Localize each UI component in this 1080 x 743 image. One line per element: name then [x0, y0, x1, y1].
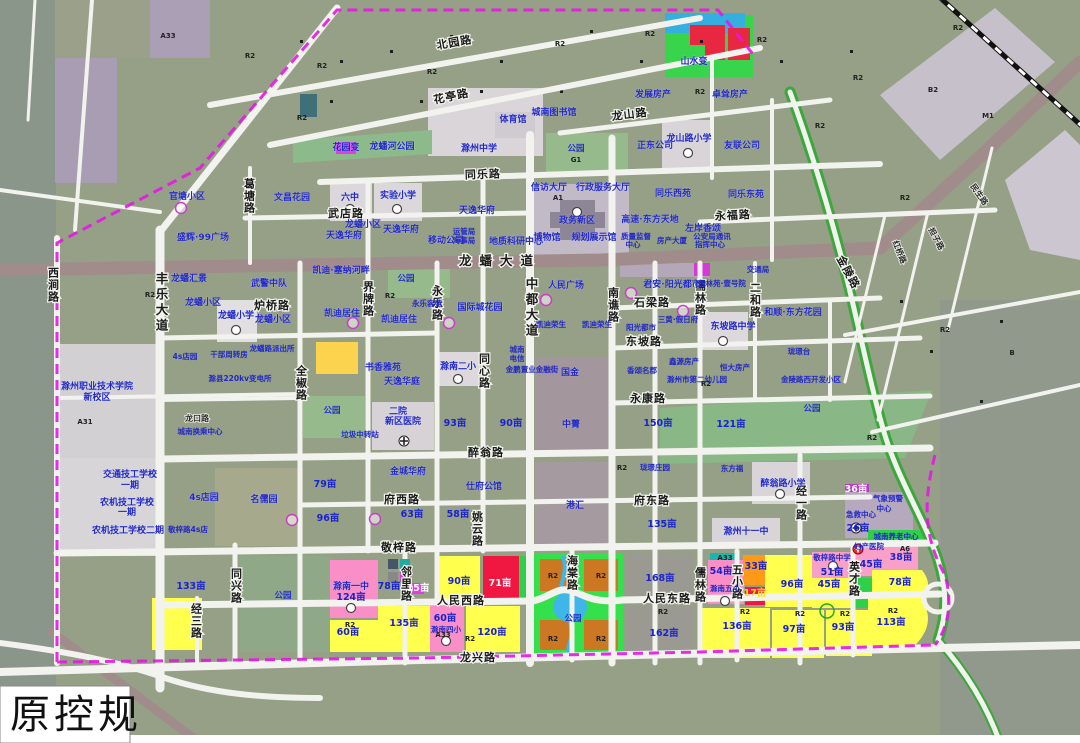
place-label: 新区医院 [385, 415, 421, 427]
place-label: 凯迪·塞纳河畔 [312, 264, 369, 276]
place-label: 龙蟠路派出所 [250, 343, 295, 353]
road-label: 姚云路 [471, 510, 485, 547]
road-label: 永康路 [629, 391, 666, 405]
zone-code: R2 [840, 610, 850, 618]
zone-code: R2 [345, 621, 355, 629]
zone-code: A1 [553, 194, 563, 202]
place-label: 东方福 [721, 463, 744, 473]
zone-code: R2 [297, 114, 307, 122]
screenshot-root: 北园路花亭路龙山路同乐路武店路永福路龙蟠大道炉桥路石梁路东坡路永康路醉翁路府西路… [0, 0, 1080, 743]
zone-code: R2 [853, 74, 863, 82]
road-label: 南谯路 [607, 286, 620, 323]
area-label: 150亩 [643, 417, 673, 429]
place-label: 龙蟠小区 [184, 296, 221, 308]
area-label: 60亩 [434, 612, 457, 624]
place-label: 滁州职业技术学院 [61, 380, 133, 392]
place-label: 儒林苑·壹号院 [697, 278, 746, 288]
place-label: 实验小学 [380, 189, 416, 201]
place-label: 敬梓路中学 [812, 552, 851, 562]
zone-code: R2 [695, 88, 705, 96]
area-label: 33亩 [745, 560, 768, 572]
place-label: 金鹏置业金融街 [505, 364, 559, 374]
place-label: 急救中心 [846, 509, 876, 519]
place-label: 同乐西苑 [655, 187, 691, 199]
zone-code: R2 [145, 291, 155, 299]
place-label: 醉翁路小学 [760, 477, 805, 489]
zone-code: B [1009, 349, 1014, 357]
place-label: 天逸华府 [459, 204, 495, 216]
place-label: 滁南二小 [440, 360, 476, 372]
place-label: 盛辉·99广场 [177, 231, 229, 243]
zone-code: R2 [658, 608, 668, 616]
road-label: 龙兴路 [459, 650, 496, 664]
zone-code: R2 [548, 635, 558, 643]
place-label: 妇产医院 [853, 541, 884, 551]
place-label: 花园变 [332, 141, 359, 153]
area-label: 97亩 [783, 623, 806, 635]
place-label: 4s店园 [173, 351, 198, 361]
zone-code: G1 [571, 156, 582, 164]
park-label: 公园 [567, 144, 584, 154]
place-label: 天逸华庭 [384, 375, 421, 387]
place-label: 城南图书馆 [531, 106, 576, 118]
place-label: 规划展示馆 [571, 231, 616, 243]
area-label: 78亩 [378, 580, 401, 592]
road-label: 五小路 [731, 564, 745, 600]
zone-code: R2 [317, 62, 327, 70]
road-label: 东坡路 [626, 334, 662, 348]
place-label: 凯迪居住 [381, 313, 417, 325]
place-label: 城南养老中心 [874, 531, 919, 541]
place-label: 4s店园 [189, 491, 219, 503]
place-label: 龙蟠小学 [217, 309, 254, 321]
road-label: 界牌路 [362, 281, 375, 317]
place-label: 信访大厅 [531, 181, 567, 193]
place-label: 运管局 [453, 226, 476, 236]
place-label: 体育馆 [499, 113, 526, 125]
area-label: 135亩 [389, 617, 419, 629]
zone-code: R2 [940, 326, 950, 334]
place-label: 龙蟠河公园 [368, 140, 414, 152]
road-label: 儒林路 [694, 566, 707, 603]
place-label: 新校区 [83, 391, 110, 403]
road-label: 中都大道 [524, 276, 539, 339]
area-label: 36亩 [845, 483, 868, 495]
zone-code: R2 [815, 122, 825, 130]
area-label: 45亩 [860, 558, 883, 570]
zone-code: R2 [596, 635, 606, 643]
place-label: 城南 [510, 344, 525, 354]
place-label: 气象预警 [872, 493, 903, 503]
place-label: 干部周转房 [210, 349, 248, 359]
park-label: 公园 [397, 274, 414, 284]
place-label: 珑璟台 [788, 346, 811, 356]
place-label: 指挥中心 [695, 239, 725, 249]
area-label: 120亩 [477, 626, 507, 638]
area-label: 54亩 [710, 565, 733, 577]
area-label: 133亩 [176, 580, 206, 592]
place-label: 凯迪荣生 [536, 319, 566, 329]
place-label: 电信 [510, 353, 525, 363]
zone-code: M1 [982, 112, 994, 120]
place-label: 龙蟠小区 [344, 218, 381, 230]
road-label: 石梁路 [633, 295, 670, 309]
place-label: 永乐容苑 [411, 298, 442, 308]
area-label: 93亩 [832, 621, 855, 633]
road-label: 府东路 [634, 493, 670, 507]
place-label: 海事局 [453, 235, 476, 245]
zone-code: R2 [427, 68, 437, 76]
place-label: 滁州中学 [461, 142, 497, 154]
area-label: 168亩 [645, 572, 675, 584]
city-plan-map: 北园路花亭路龙山路同乐路武店路永福路龙蟠大道炉桥路石梁路东坡路永康路醉翁路府西路… [0, 0, 1080, 743]
place-label: 文昌花园 [273, 191, 310, 203]
road-label: 醉翁路 [468, 445, 504, 459]
place-label: 发展房产 [634, 88, 671, 100]
zone-code: R2 [701, 380, 711, 388]
place-label: 高速·东方天地 [621, 213, 678, 225]
area-label: 162亩 [649, 627, 679, 639]
place-label: 金城华府 [389, 465, 426, 477]
zone-code: R2 [900, 194, 910, 202]
area-label: 26亩 [847, 522, 870, 534]
zone-code: R2 [867, 434, 877, 442]
place-label: 城南换乘中心 [178, 426, 223, 436]
area-label: 15亩 [407, 582, 430, 594]
road-label: 龙口路 [184, 413, 210, 423]
place-label: 仕府公馆 [465, 480, 502, 492]
zone-code: R2 [617, 464, 627, 472]
place-label: 垃圾中转站 [341, 429, 379, 439]
road-label: 丰乐大道 [154, 271, 169, 334]
road-label: 龙蟠大道 [458, 253, 541, 268]
road-label: 经一路 [795, 484, 808, 521]
road-label: 全椒路 [295, 364, 309, 401]
caption: 原控规 [10, 692, 142, 738]
road-label: 武店路 [328, 206, 364, 220]
place-label: 天逸华府 [326, 229, 362, 241]
zone-code: A33 [717, 554, 732, 562]
place-label: 中菁 [562, 418, 580, 430]
place-label: 农机技工学校二期 [91, 524, 164, 536]
road-label: 葛塘路 [243, 177, 257, 214]
area-label: 78亩 [889, 576, 912, 588]
place-label: 房产大厦 [657, 235, 687, 245]
place-label: 官塘小区 [169, 190, 205, 202]
road-label: 二和路 [749, 282, 762, 318]
place-label: 一期 [118, 506, 136, 518]
road-label: 经三路 [190, 602, 203, 639]
road-label: 海棠路 [566, 554, 580, 591]
place-label: 滁州市第二幼儿园 [667, 374, 727, 384]
area-label: 136亩 [722, 620, 752, 632]
place-label: 和顺·东方花园 [763, 306, 821, 318]
place-label: 滁南五小 [710, 583, 740, 593]
place-label: 龙蟠小区 [254, 313, 291, 325]
place-label: 龙山路小学 [665, 132, 711, 144]
area-label: 63亩 [401, 508, 424, 520]
place-label: 博物馆 [533, 231, 560, 243]
zone-code: B2 [928, 86, 938, 94]
place-label: 友联公司 [724, 139, 760, 151]
area-label: 71亩 [489, 577, 512, 589]
area-label: 90亩 [500, 417, 523, 429]
place-label: 卓耸房产 [712, 88, 748, 100]
zone-code: R2 [888, 607, 898, 615]
road-label: 同心路 [478, 353, 491, 389]
zone-code: R2 [953, 24, 963, 32]
place-label: 行政服务大厅 [575, 181, 630, 193]
place-label: 中心 [626, 239, 641, 249]
place-label: 交通技工学校 [103, 468, 158, 480]
place-label: 交通局 [747, 264, 770, 274]
place-label: 鑫源房产 [668, 356, 699, 366]
zone-code: R2 [465, 635, 475, 643]
zone-code: R2 [596, 572, 606, 580]
place-label: 敬梓路4s店 [167, 524, 208, 534]
place-label: 凯迪荣生 [582, 319, 612, 329]
area-label: 58亩 [447, 508, 470, 520]
zone-code: R2 [795, 610, 805, 618]
road-label: 府西路 [384, 492, 420, 506]
road-label: 西涧路 [47, 267, 60, 303]
road-label: 永福路 [713, 207, 751, 223]
place-label: 珑璟庄园 [640, 462, 670, 472]
area-label: 124亩 [336, 591, 366, 603]
road-label: 同乐路 [465, 166, 501, 181]
zone-code: A6 [900, 545, 910, 553]
area-label: 90亩 [448, 575, 471, 587]
area-label: 121亩 [716, 418, 746, 430]
zone-code: R2 [548, 572, 558, 580]
place-label: 君安·阳光都市 [643, 278, 700, 290]
place-label: 滁州十一中 [723, 525, 768, 537]
area-label: 93亩 [444, 417, 467, 429]
road-label: 同兴路 [230, 568, 243, 604]
area-label: 96亩 [317, 512, 340, 524]
place-label: 国金 [561, 366, 580, 378]
area-label: 79亩 [314, 478, 337, 490]
place-label: 武警中队 [251, 277, 288, 289]
place-label: 农机技工学校 [99, 496, 155, 508]
zone-code: R2 [555, 40, 565, 48]
place-label: 凯迪居住 [324, 307, 360, 319]
place-label: 人民广场 [547, 279, 584, 291]
road-label: 敬梓路 [380, 540, 417, 554]
area-label: 51亩 [821, 566, 844, 578]
place-label: 书香雅苑 [365, 361, 401, 373]
area-label: 96亩 [781, 578, 804, 590]
park-label: 公园 [274, 591, 291, 601]
place-label: 滁南一中 [333, 580, 369, 592]
zone-code: R2 [740, 608, 750, 616]
place-label: 阳光都市 [626, 322, 656, 332]
zone-code: R2 [757, 36, 767, 44]
place-label: 滁县220kv变电所 [208, 373, 272, 383]
place-label: 香颂名郡 [626, 365, 657, 375]
zone-code: A33 [160, 32, 175, 40]
place-label: 恒大房产 [720, 362, 750, 372]
place-label: 同乐东苑 [728, 188, 764, 200]
area-label: 45亩 [818, 578, 841, 590]
park-label: 公园 [323, 406, 340, 416]
place-label: 三黄·假日府 [658, 314, 699, 324]
place-label: 二院 [389, 405, 407, 417]
place-label: 左岸香颂 [684, 222, 721, 234]
place-label: 中心 [877, 503, 892, 513]
zone-code: A33 [435, 631, 450, 639]
place-label: 六中 [341, 191, 359, 203]
place-label: 一期 [121, 479, 139, 491]
place-label: 龙蟠汇景 [170, 272, 207, 284]
road-label: 人民东路 [643, 591, 691, 605]
zone-code: R2 [245, 52, 255, 60]
place-label: 国际城花园 [457, 301, 502, 313]
place-label: 东坡路中学 [710, 320, 755, 332]
road-label: 炉桥路 [254, 298, 290, 312]
area-label: 135亩 [647, 518, 677, 530]
area-label: 113亩 [876, 616, 906, 628]
road-label: 人民西路 [437, 593, 485, 607]
place-label: 政务新区 [559, 214, 595, 226]
zone-code: R2 [645, 30, 655, 38]
place-label: 名儒园 [250, 493, 277, 505]
place-label: 金陵路西开发小区 [780, 374, 841, 384]
place-label: 港汇 [566, 499, 584, 511]
place-label: 山水变 [680, 55, 707, 67]
park-label: 公园 [564, 614, 581, 624]
park-label: 公园 [803, 404, 820, 414]
zone-code: R2 [385, 292, 395, 300]
place-label: 天逸华府 [383, 223, 419, 235]
zone-code: A31 [77, 418, 92, 426]
area-label: 17亩 [744, 587, 767, 599]
